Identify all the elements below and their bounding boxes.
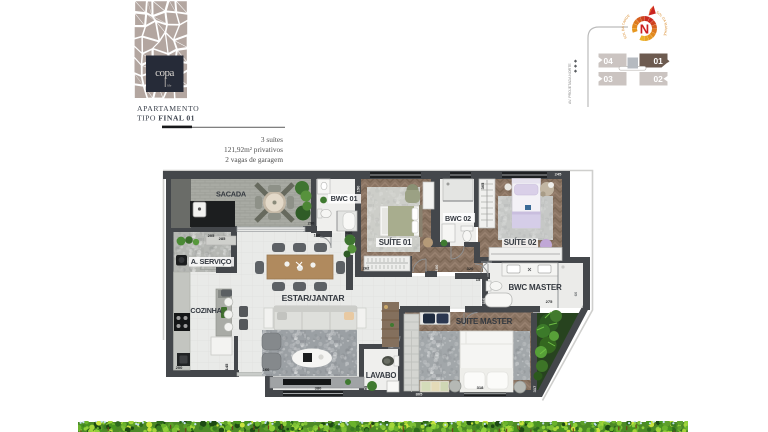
svg-text:262: 262 [363, 266, 370, 271]
svg-text:318: 318 [477, 385, 484, 390]
svg-text:APARTAMENTO: APARTAMENTO [137, 104, 199, 113]
svg-text:01: 01 [654, 56, 664, 66]
svg-text:SUÍTE 02: SUÍTE 02 [504, 238, 537, 247]
svg-text:3 suítes: 3 suítes [261, 135, 283, 144]
svg-text:TIPO FINAL 01: TIPO FINAL 01 [137, 114, 195, 123]
svg-text:COZINHA: COZINHA [190, 306, 221, 315]
svg-text:15: 15 [476, 277, 481, 282]
svg-text:AV. PROJETADA NORTE: AV. PROJETADA NORTE [568, 63, 572, 104]
svg-text:ESTAR/JANTAR: ESTAR/JANTAR [282, 293, 346, 303]
svg-text:SUÍTE 01: SUÍTE 01 [379, 238, 412, 247]
svg-text:320: 320 [467, 266, 474, 271]
svg-text:160: 160 [314, 233, 321, 238]
svg-text:245: 245 [555, 172, 562, 177]
svg-text:BWC 02: BWC 02 [445, 214, 471, 223]
svg-text:LAVABO: LAVABO [366, 371, 397, 380]
svg-text:200: 200 [176, 365, 183, 370]
svg-text:290: 290 [308, 221, 315, 226]
svg-text:SUITE MASTER: SUITE MASTER [456, 317, 513, 326]
svg-text:317: 317 [532, 385, 537, 392]
svg-text:980: 980 [346, 230, 353, 235]
svg-text:A. SERVIÇO: A. SERVIÇO [191, 257, 232, 266]
svg-text:03: 03 [604, 74, 614, 84]
svg-text:285: 285 [219, 236, 226, 241]
svg-text:SOL DA MANHÃ: SOL DA MANHÃ [655, 10, 668, 37]
svg-text:BWC MASTER: BWC MASTER [508, 283, 562, 292]
svg-text:145: 145 [224, 363, 229, 370]
svg-text:805: 805 [416, 392, 423, 397]
svg-text:275: 275 [546, 299, 553, 304]
svg-text:2 vagas de garagem: 2 vagas de garagem [225, 155, 283, 164]
svg-text:N: N [640, 22, 649, 37]
svg-text:BWC 01: BWC 01 [331, 194, 358, 203]
svg-text:380: 380 [315, 386, 322, 391]
svg-text:150: 150 [356, 185, 361, 192]
svg-text:95: 95 [363, 385, 368, 390]
svg-text:60: 60 [573, 291, 578, 296]
svg-text:SOL DA TARDE: SOL DA TARDE [621, 13, 631, 39]
svg-text:100: 100 [434, 264, 439, 271]
svg-text:04: 04 [604, 56, 614, 66]
svg-text:SACADA: SACADA [216, 190, 247, 199]
svg-text:121,92m² privativos: 121,92m² privativos [224, 145, 283, 154]
svg-text:305: 305 [480, 182, 485, 189]
svg-text:life: life [167, 84, 172, 88]
svg-text:110: 110 [481, 297, 486, 304]
svg-text:02: 02 [654, 74, 664, 84]
svg-text:205: 205 [208, 233, 215, 238]
svg-text:160: 160 [263, 367, 270, 372]
svg-text:copa: copa [155, 67, 174, 79]
